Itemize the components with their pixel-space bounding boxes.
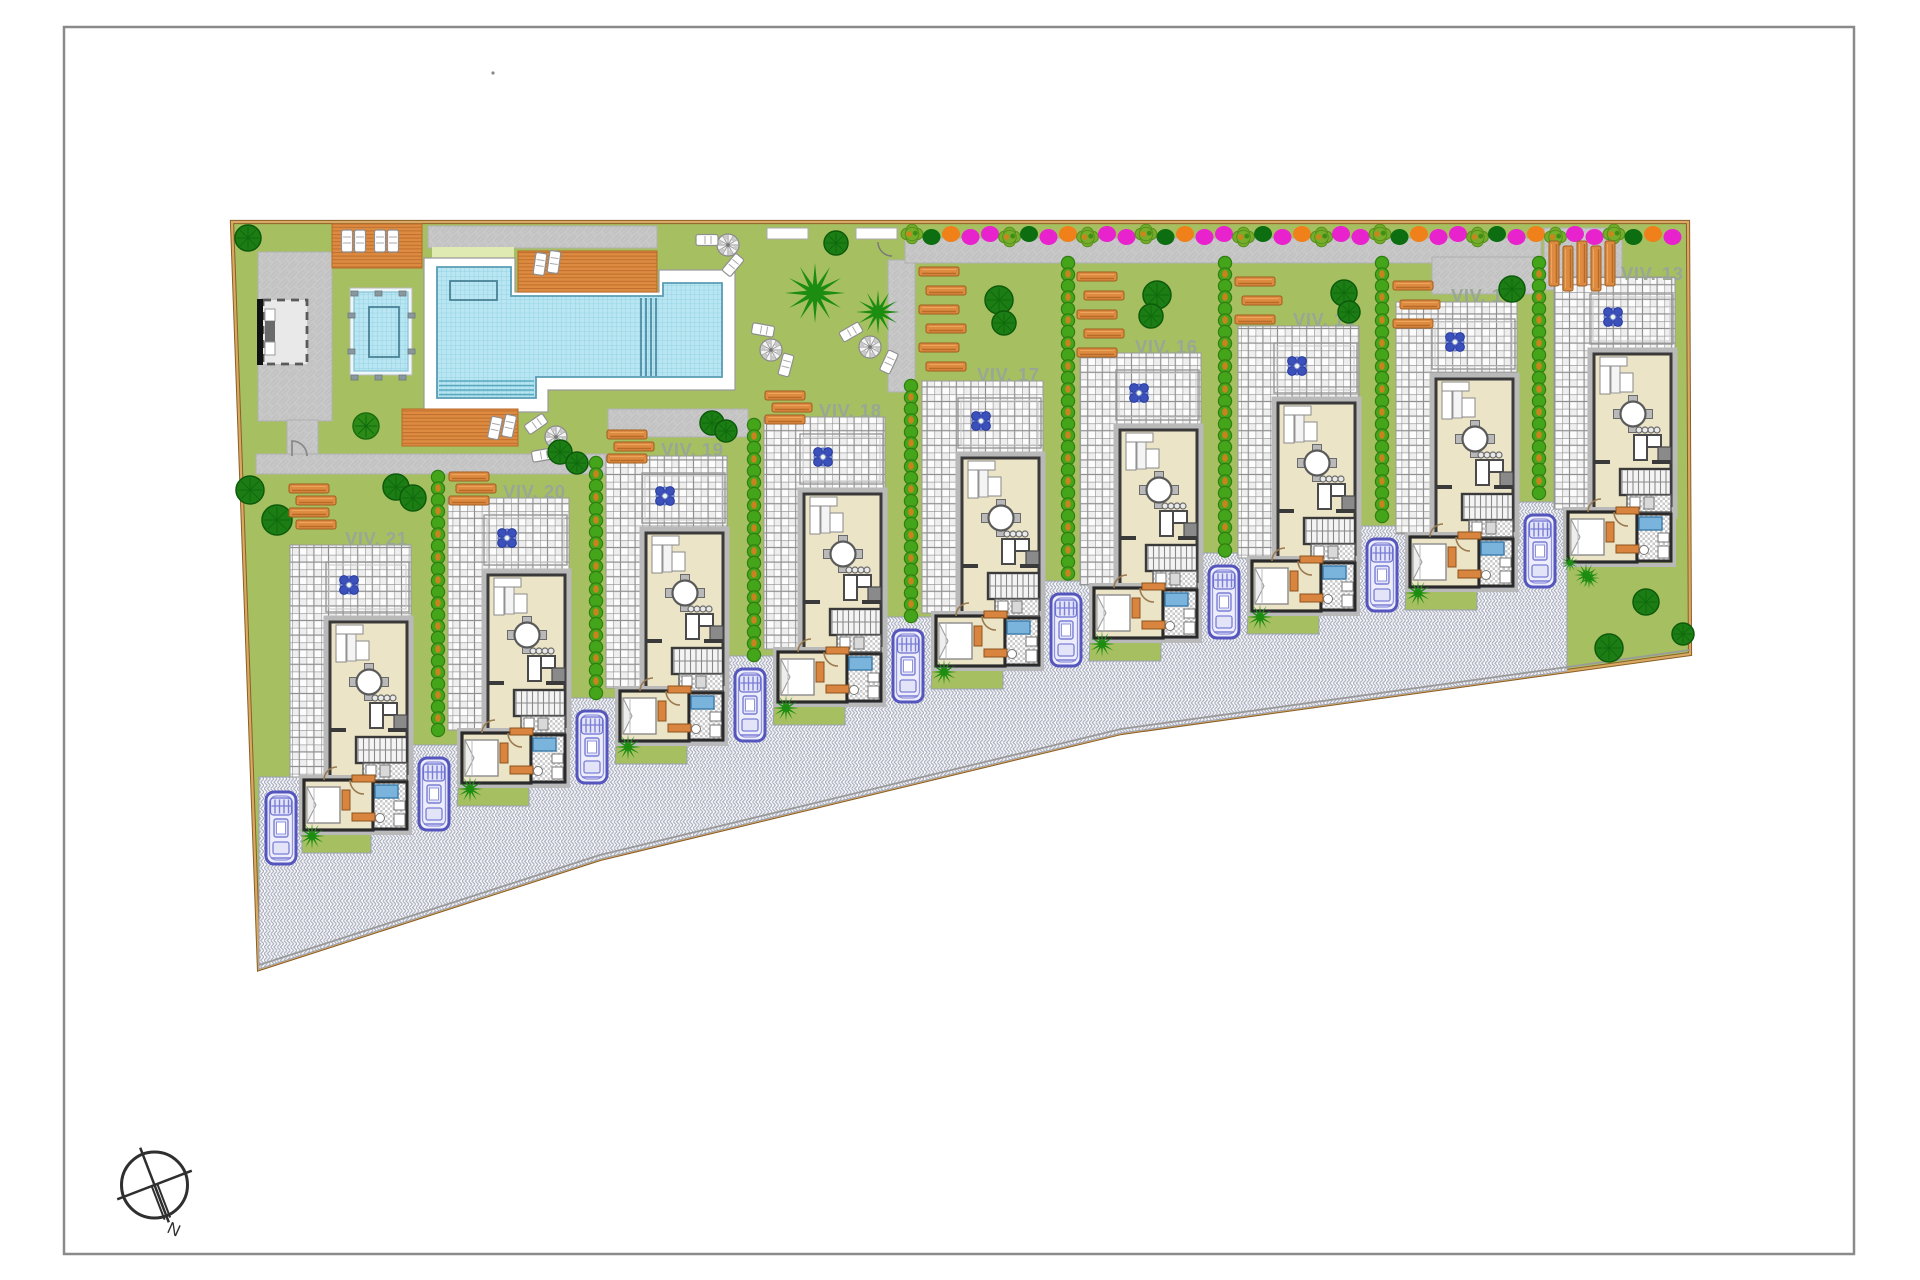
svg-text:VIV. 21: VIV. 21 <box>345 528 407 549</box>
svg-text:VIV. 18: VIV. 18 <box>819 400 881 421</box>
svg-text:VIV. 19: VIV. 19 <box>661 439 723 460</box>
svg-text:VIV. 20: VIV. 20 <box>503 481 565 502</box>
svg-text:VIV. 13: VIV. 13 <box>1621 263 1683 284</box>
svg-text:VIV. 17: VIV. 17 <box>977 364 1039 385</box>
svg-text:VIV. 16: VIV. 16 <box>1135 336 1197 357</box>
